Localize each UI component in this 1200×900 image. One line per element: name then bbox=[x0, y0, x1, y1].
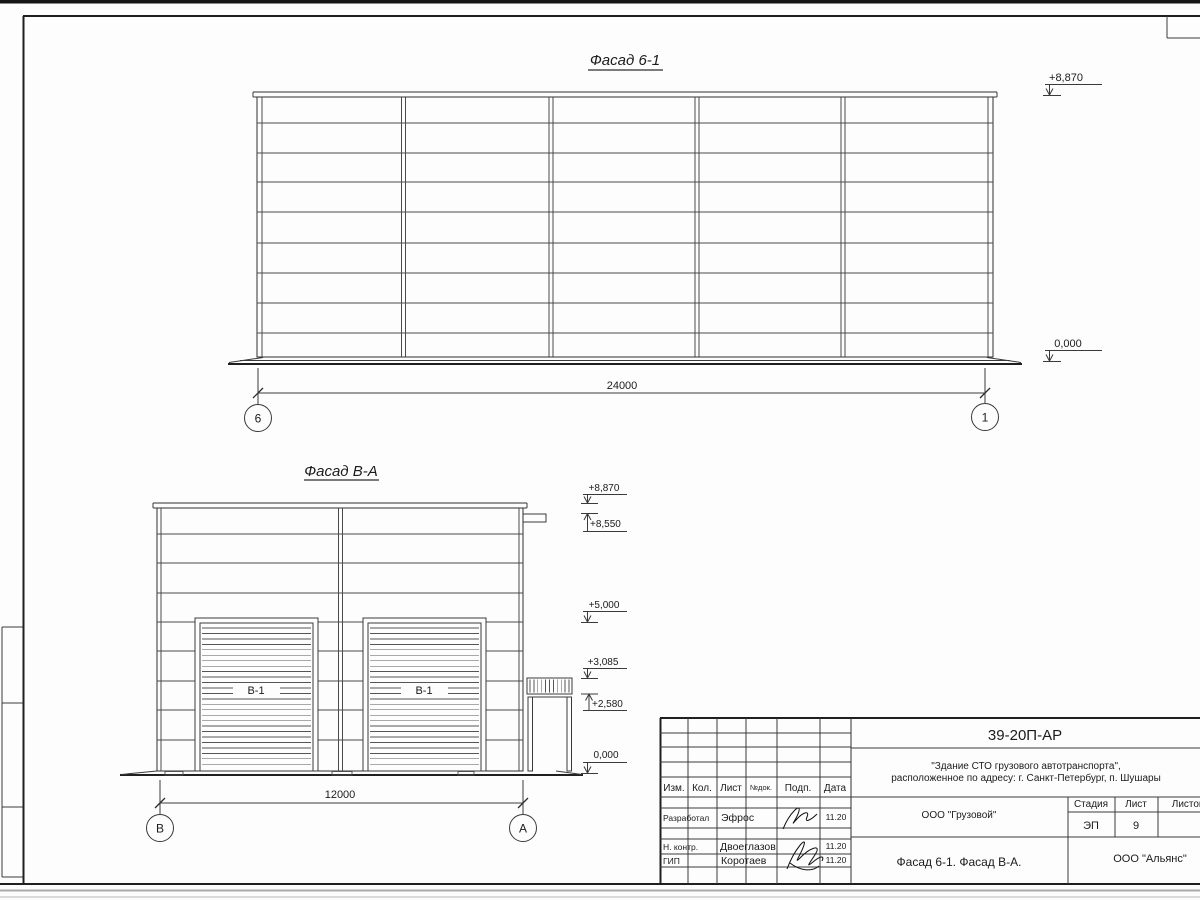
sheet-label: Лист bbox=[1125, 799, 1147, 810]
gate-1-leaf bbox=[200, 623, 313, 771]
signature-razrabotal bbox=[783, 808, 817, 829]
side-porch bbox=[527, 678, 572, 771]
facade-6-1: Фасад 6-1 +8,870 bbox=[228, 52, 1102, 432]
elevation-mark-8870: +8,870 bbox=[581, 483, 627, 504]
row-name-0: Эфрос bbox=[721, 812, 754, 824]
row-name-1: Двоеглазов bbox=[720, 841, 776, 853]
svg-text:+3,085: +3,085 bbox=[588, 657, 619, 668]
stage-label: Стадия bbox=[1074, 799, 1108, 810]
row-role-2: ГИП bbox=[663, 856, 680, 866]
drawing-sheet: Фасад 6-1 +8,870 bbox=[0, 0, 1200, 900]
svg-text:+8,870: +8,870 bbox=[1049, 72, 1083, 84]
stage-value: ЭП bbox=[1083, 820, 1099, 832]
col-kol: Кол. bbox=[692, 783, 712, 794]
row-date-2: 11.20 bbox=[826, 855, 847, 865]
row-date-0: 11.20 bbox=[826, 812, 847, 822]
elevation-mark-8550: +8,550 bbox=[581, 514, 627, 532]
gate-group: В-1 В-1 bbox=[195, 618, 486, 771]
row-role-0: Разработал bbox=[663, 813, 709, 823]
top-right-stamp-box bbox=[1167, 16, 1200, 38]
facade-v-a: Фасад В-А В-1 В-1 bbox=[120, 463, 627, 842]
facade-6-1-wall bbox=[228, 92, 1022, 364]
doc-number: 39-20П-АР bbox=[988, 727, 1062, 744]
svg-text:0,000: 0,000 bbox=[593, 750, 618, 761]
axis-marker-1: 1 bbox=[972, 404, 999, 431]
axis-marker-v: В bbox=[147, 815, 174, 842]
facade-v-a-dimension: 12000 bbox=[155, 780, 528, 814]
elevation-mark-zero-va: 0,000 bbox=[581, 750, 627, 774]
axis-marker-6: 6 bbox=[245, 405, 272, 432]
col-ndok: №док. bbox=[750, 783, 772, 792]
col-izm: Изм. bbox=[663, 783, 684, 794]
svg-text:0,000: 0,000 bbox=[1054, 338, 1082, 350]
facade-v-a-title: Фасад В-А bbox=[304, 463, 378, 480]
svg-text:+2,580: +2,580 bbox=[592, 699, 623, 710]
svg-text:+8,550: +8,550 bbox=[590, 519, 621, 530]
organization-name: ООО "Альянс" bbox=[1113, 853, 1187, 865]
dimension-value: 12000 bbox=[325, 789, 356, 801]
porch-post-right bbox=[567, 697, 572, 771]
client-name: ООО "Грузовой" bbox=[922, 810, 997, 821]
row-name-2: Коротаев bbox=[721, 855, 767, 867]
col-podp: Подп. bbox=[785, 783, 812, 794]
svg-text:+5,000: +5,000 bbox=[589, 600, 620, 611]
elevation-mark-3085: +3,085 bbox=[581, 657, 627, 679]
svg-text:А: А bbox=[519, 822, 527, 836]
sheets-label: Листов bbox=[1172, 799, 1200, 810]
left-filing-boxes bbox=[2, 627, 23, 877]
project-name-line2: расположенное по адресу: г. Санкт-Петерб… bbox=[891, 772, 1161, 784]
svg-text:В: В bbox=[156, 822, 164, 836]
elevation-mark-top: +8,870 bbox=[1043, 72, 1102, 96]
svg-text:+8,870: +8,870 bbox=[589, 483, 620, 494]
gate-2-leaf bbox=[368, 623, 481, 771]
elevation-mark-5000: +5,000 bbox=[581, 600, 627, 623]
project-name-line1: "Здание СТО грузового автотранспорта", bbox=[931, 761, 1121, 772]
axis-marker-a: А bbox=[510, 815, 537, 842]
sheet-title: Фасад 6-1. Фасад В-А. bbox=[897, 855, 1022, 869]
porch-post-left bbox=[528, 697, 533, 771]
gate-1-label: В-1 bbox=[247, 685, 264, 697]
row-date-1: 11.20 bbox=[826, 841, 847, 851]
svg-text:6: 6 bbox=[255, 412, 262, 426]
elevation-mark-zero: 0,000 bbox=[1043, 338, 1102, 362]
svg-text:1: 1 bbox=[982, 411, 989, 425]
dimension-value: 24000 bbox=[607, 380, 638, 392]
facade-6-1-title: Фасад 6-1 bbox=[590, 52, 660, 69]
roof-pipe bbox=[523, 514, 546, 522]
gate-2-label: В-1 bbox=[415, 685, 432, 697]
col-list: Лист bbox=[720, 783, 742, 794]
row-role-1: Н. контр. bbox=[663, 842, 698, 852]
title-block: Изм. Кол. Лист №док. Подп. Дата Разработ… bbox=[660, 718, 1200, 884]
sheet-value: 9 bbox=[1133, 820, 1139, 832]
signature-gip bbox=[787, 842, 823, 870]
page-top-edge bbox=[0, 0, 1200, 4]
elevation-mark-2580: +2,580 bbox=[581, 694, 627, 711]
facade-6-1-dimension: 24000 bbox=[253, 368, 990, 404]
col-data: Дата bbox=[824, 783, 847, 794]
